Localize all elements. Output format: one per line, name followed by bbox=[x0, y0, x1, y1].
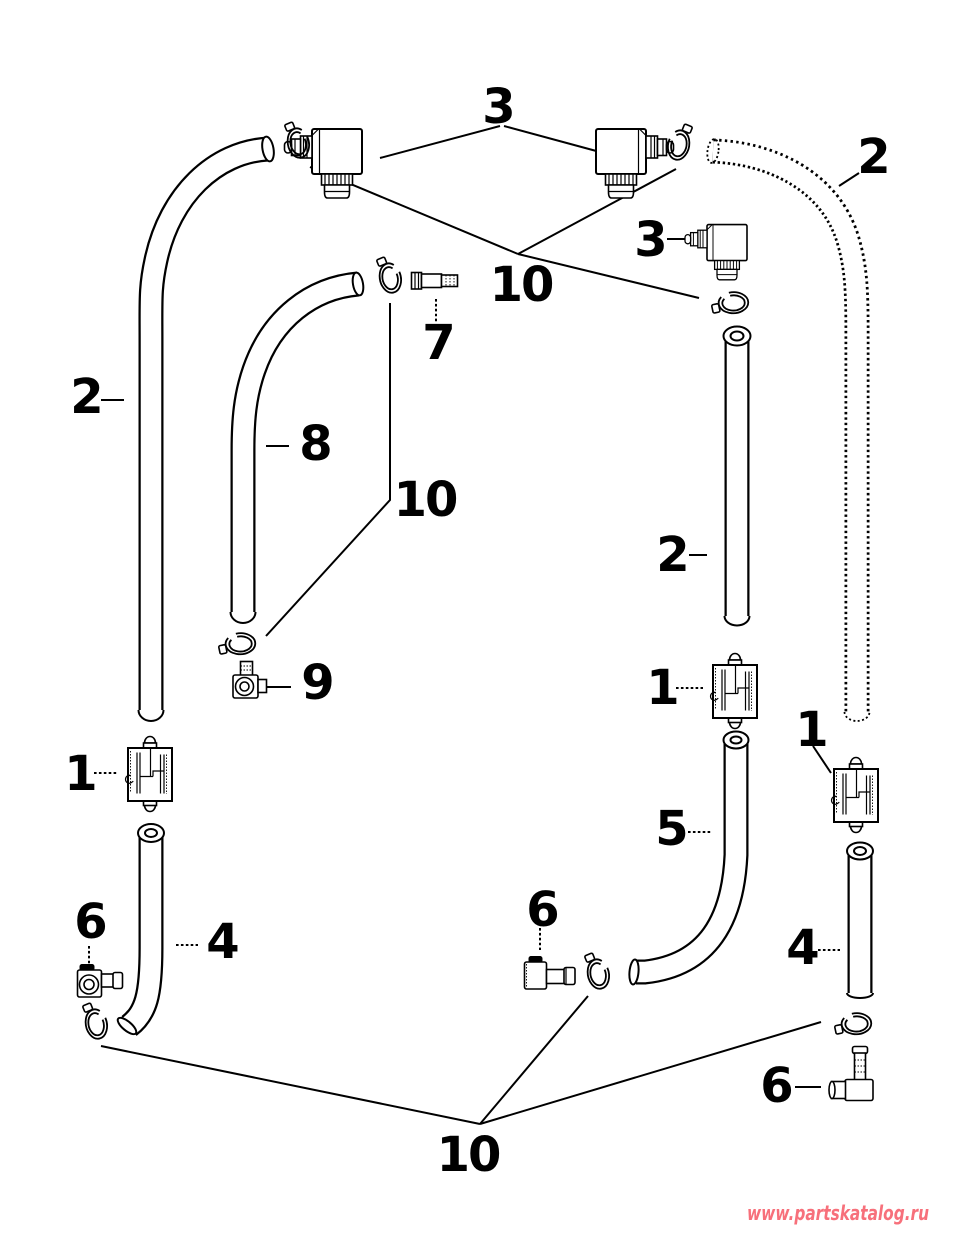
hose-8 bbox=[231, 272, 365, 623]
fitting-9 bbox=[233, 662, 267, 699]
fitting-6-left bbox=[78, 965, 123, 998]
callout-10-top: 10 bbox=[490, 257, 553, 313]
callout-4-left: 4 bbox=[206, 914, 238, 970]
watermark-text: www.partskatalog.ru bbox=[747, 1201, 929, 1225]
hose-5 bbox=[628, 732, 748, 985]
callout-6-left: 6 bbox=[74, 894, 105, 950]
fitting-6-middle bbox=[525, 957, 576, 990]
parts-diagram-page: 3 2 3 10 7 2 8 10 2 9 1 1 1 5 6 4 6 4 6 … bbox=[0, 0, 980, 1243]
clamp-bottom-middle bbox=[584, 953, 609, 989]
leader-3-top-right bbox=[504, 126, 600, 152]
connector-1-left bbox=[126, 737, 172, 812]
connector-1-right bbox=[832, 758, 878, 833]
clamp-hose8-bottom bbox=[217, 629, 257, 659]
callout-10-bottom: 10 bbox=[437, 1127, 500, 1183]
fitting-3-right bbox=[685, 225, 747, 280]
clamp-bottom-left bbox=[82, 1003, 107, 1039]
leader-10-bottom-b bbox=[480, 996, 588, 1124]
callout-1-left: 1 bbox=[64, 746, 95, 802]
hose-4-left bbox=[115, 824, 164, 1037]
leader-10-bottom-a bbox=[101, 1046, 480, 1124]
callout-10-middle: 10 bbox=[394, 472, 457, 528]
hose-2-middle-tube bbox=[724, 327, 751, 626]
callout-6-middle: 6 bbox=[526, 882, 557, 938]
clamp-right-middle bbox=[710, 288, 750, 318]
fitting-6-right bbox=[829, 1047, 873, 1101]
callout-8: 8 bbox=[299, 416, 330, 472]
callout-6-right: 6 bbox=[760, 1058, 791, 1114]
clamp-top-right bbox=[668, 124, 693, 160]
parts-diagram: 3 2 3 10 7 2 8 10 2 9 1 1 1 5 6 4 6 4 6 … bbox=[0, 0, 980, 1243]
callout-1-right: 1 bbox=[795, 702, 826, 758]
callout-9: 9 bbox=[301, 655, 332, 711]
clamp-hose8-top bbox=[376, 257, 401, 293]
callout-1-middle: 1 bbox=[646, 660, 677, 716]
fitting-3-top-left bbox=[285, 129, 363, 198]
callout-3-top: 3 bbox=[482, 79, 513, 135]
hose-4-right bbox=[847, 843, 873, 999]
callout-4-right: 4 bbox=[786, 920, 818, 976]
callout-3-right: 3 bbox=[634, 212, 665, 268]
leader-2-top-right bbox=[839, 173, 859, 186]
callout-2-top-right: 2 bbox=[857, 129, 888, 185]
fitting-3-top-right bbox=[596, 129, 674, 198]
clamp-bottom-right bbox=[833, 1009, 873, 1039]
fitting-7 bbox=[412, 273, 458, 290]
callout-2-left: 2 bbox=[70, 369, 101, 425]
connector-1-middle bbox=[711, 654, 757, 729]
callout-5: 5 bbox=[655, 801, 686, 857]
callout-2-middle: 2 bbox=[656, 527, 687, 583]
callout-7: 7 bbox=[422, 315, 453, 371]
